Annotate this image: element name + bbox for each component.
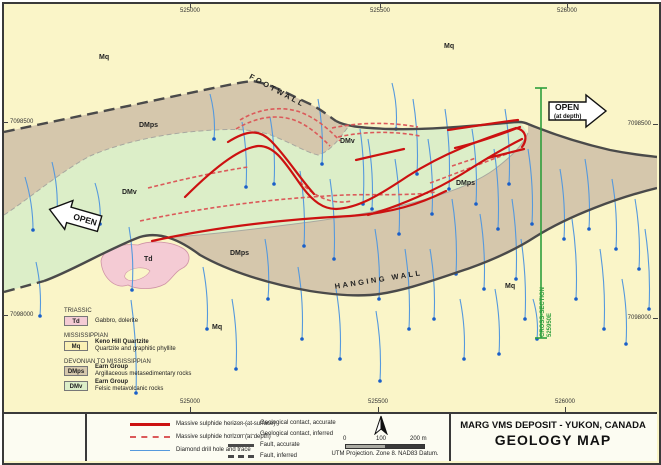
drill-hole-collar — [496, 227, 500, 231]
scale-100: 100 — [376, 436, 386, 442]
drill-hole-collar — [482, 287, 486, 291]
fault-dashed-line-symbol — [228, 455, 254, 458]
drill-hole-collar — [415, 172, 419, 176]
drill-hole-collar — [407, 327, 411, 331]
map-label-dmps: DMps — [139, 122, 158, 129]
drill-hole-collar — [212, 137, 216, 141]
legend-row-fault-inferred: Fault, inferred — [228, 451, 297, 461]
drill-hole-collar — [523, 317, 527, 321]
map-label-td: Td — [144, 256, 153, 263]
northing-tick — [3, 315, 8, 316]
drill-hole-collar — [205, 327, 209, 331]
legend-row-contact-inferred: Geological contact, inferred — [228, 429, 333, 439]
easting-label: 526000 — [548, 399, 582, 405]
unit-desc-td: Gabbro, dolerite — [95, 318, 138, 324]
svg-text:OPEN: OPEN — [555, 102, 579, 112]
drill-hole-collar — [332, 257, 336, 261]
cross-section-label: CROSS-SECTION 525950E — [540, 287, 554, 337]
map-title-line1: MARG VMS DEPOSIT - YUKON, CANADA — [449, 420, 657, 431]
drill-hole-collar — [514, 277, 518, 281]
drill-hole-collar — [507, 182, 511, 186]
map-label-mq: Mq — [444, 43, 454, 50]
drill-hole-collar — [624, 342, 628, 346]
unit-desc-dmps: Argillaceous metasedimentary rocks — [95, 371, 191, 377]
drill-hole-collar — [497, 352, 501, 356]
drill-hole-collar — [266, 297, 270, 301]
drill-hole-collar — [530, 222, 534, 226]
drill-hole-collar — [432, 317, 436, 321]
northing-label: 7098500 — [10, 119, 44, 125]
svg-text:(at depth): (at depth) — [554, 114, 581, 120]
drill-hole-collar — [377, 297, 381, 301]
drill-hole-collar — [474, 202, 478, 206]
red-dashed-line-symbol — [130, 436, 170, 438]
swatch-mq: Mq — [64, 341, 88, 351]
scale-200: 200 m — [410, 436, 427, 442]
northing-tick — [653, 318, 658, 319]
drill-hole-collar — [447, 187, 451, 191]
scale-bar — [345, 444, 425, 449]
northing-tick — [653, 124, 658, 125]
drill-hole-collar — [338, 357, 342, 361]
drill-hole-collar — [587, 227, 591, 231]
easting-label: 525000 — [173, 399, 207, 405]
drill-hole-collar — [130, 288, 134, 292]
title-block: MARG VMS DEPOSIT - YUKON, CANADA GEOLOGY… — [449, 412, 657, 461]
projection-note: UTM Projection. Zone 8. NAD83 Datum. — [320, 451, 450, 457]
unit-desc-dmv: Felsic metavolcanic rocks — [95, 386, 163, 392]
gray-dashed-line-symbol — [228, 434, 254, 435]
drill-hole-collar — [574, 297, 578, 301]
legend-row-fault-accurate: Fault, accurate — [228, 440, 300, 450]
unit-desc-mq: Quartzite and graphitic phyllite — [95, 346, 176, 352]
scale-0: 0 — [343, 436, 346, 442]
drill-hole-collar — [614, 247, 618, 251]
drill-hole-collar — [244, 185, 248, 189]
drill-hole-collar — [397, 232, 401, 236]
drill-hole-collar — [31, 228, 35, 232]
swatch-td: Td — [64, 316, 88, 326]
map-label-mq: Mq — [99, 54, 109, 61]
gray-line-symbol — [228, 423, 254, 424]
drill-hole-collar — [234, 367, 238, 371]
northing-tick — [3, 122, 8, 123]
swatch-dmv: DMv — [64, 381, 88, 391]
map-title-line2: GEOLOGY MAP — [449, 432, 657, 448]
unit-name-dmv: Earn Group — [95, 379, 128, 385]
drill-hole-collar — [302, 244, 306, 248]
drill-hole-collar — [562, 237, 566, 241]
drill-hole-collar — [378, 379, 382, 383]
map-label-mq: Mq — [505, 283, 515, 290]
red-solid-line-symbol — [130, 423, 170, 426]
strip-divider — [85, 412, 87, 461]
fault-line-symbol — [228, 444, 254, 447]
drill-hole-collar — [637, 267, 641, 271]
map-label-dmps: DMps — [456, 180, 475, 187]
northing-label: 7098000 — [617, 315, 651, 321]
map-label-dmps: DMps — [230, 250, 249, 257]
blue-line-symbol — [130, 450, 170, 451]
easting-label: 525000 — [173, 8, 207, 14]
drill-hole-collar — [430, 212, 434, 216]
drill-hole-collar — [320, 162, 324, 166]
north-arrow-icon — [372, 415, 390, 435]
geology-map-page: OPEN OPEN (at depth) MqMqMqMqDMpsDMpsDMp… — [0, 0, 661, 465]
easting-label: 525500 — [361, 399, 395, 405]
easting-label: 525500 — [363, 8, 397, 14]
drill-hole-collar — [462, 357, 466, 361]
drill-hole-collar — [647, 307, 651, 311]
unit-name-mq: Keno Hill Quartzite — [95, 339, 149, 345]
easting-label: 526000 — [550, 8, 584, 14]
legend-row-contact-accurate: Geological contact, accurate — [228, 418, 336, 428]
unit-name-dmps: Earn Group — [95, 364, 128, 370]
northing-label: 7098500 — [617, 121, 651, 127]
drill-hole-collar — [272, 182, 276, 186]
map-label-dmv: DMv — [340, 138, 355, 145]
drill-hole-collar — [300, 337, 304, 341]
map-label-mq: Mq — [212, 324, 222, 331]
drill-hole-collar — [602, 327, 606, 331]
swatch-dmps: DMps — [64, 366, 88, 376]
drill-hole-collar — [370, 207, 374, 211]
era-heading: TRIASSIC — [64, 308, 92, 314]
map-label-dmv: DMv — [122, 189, 137, 196]
northing-label: 7098000 — [10, 312, 44, 318]
